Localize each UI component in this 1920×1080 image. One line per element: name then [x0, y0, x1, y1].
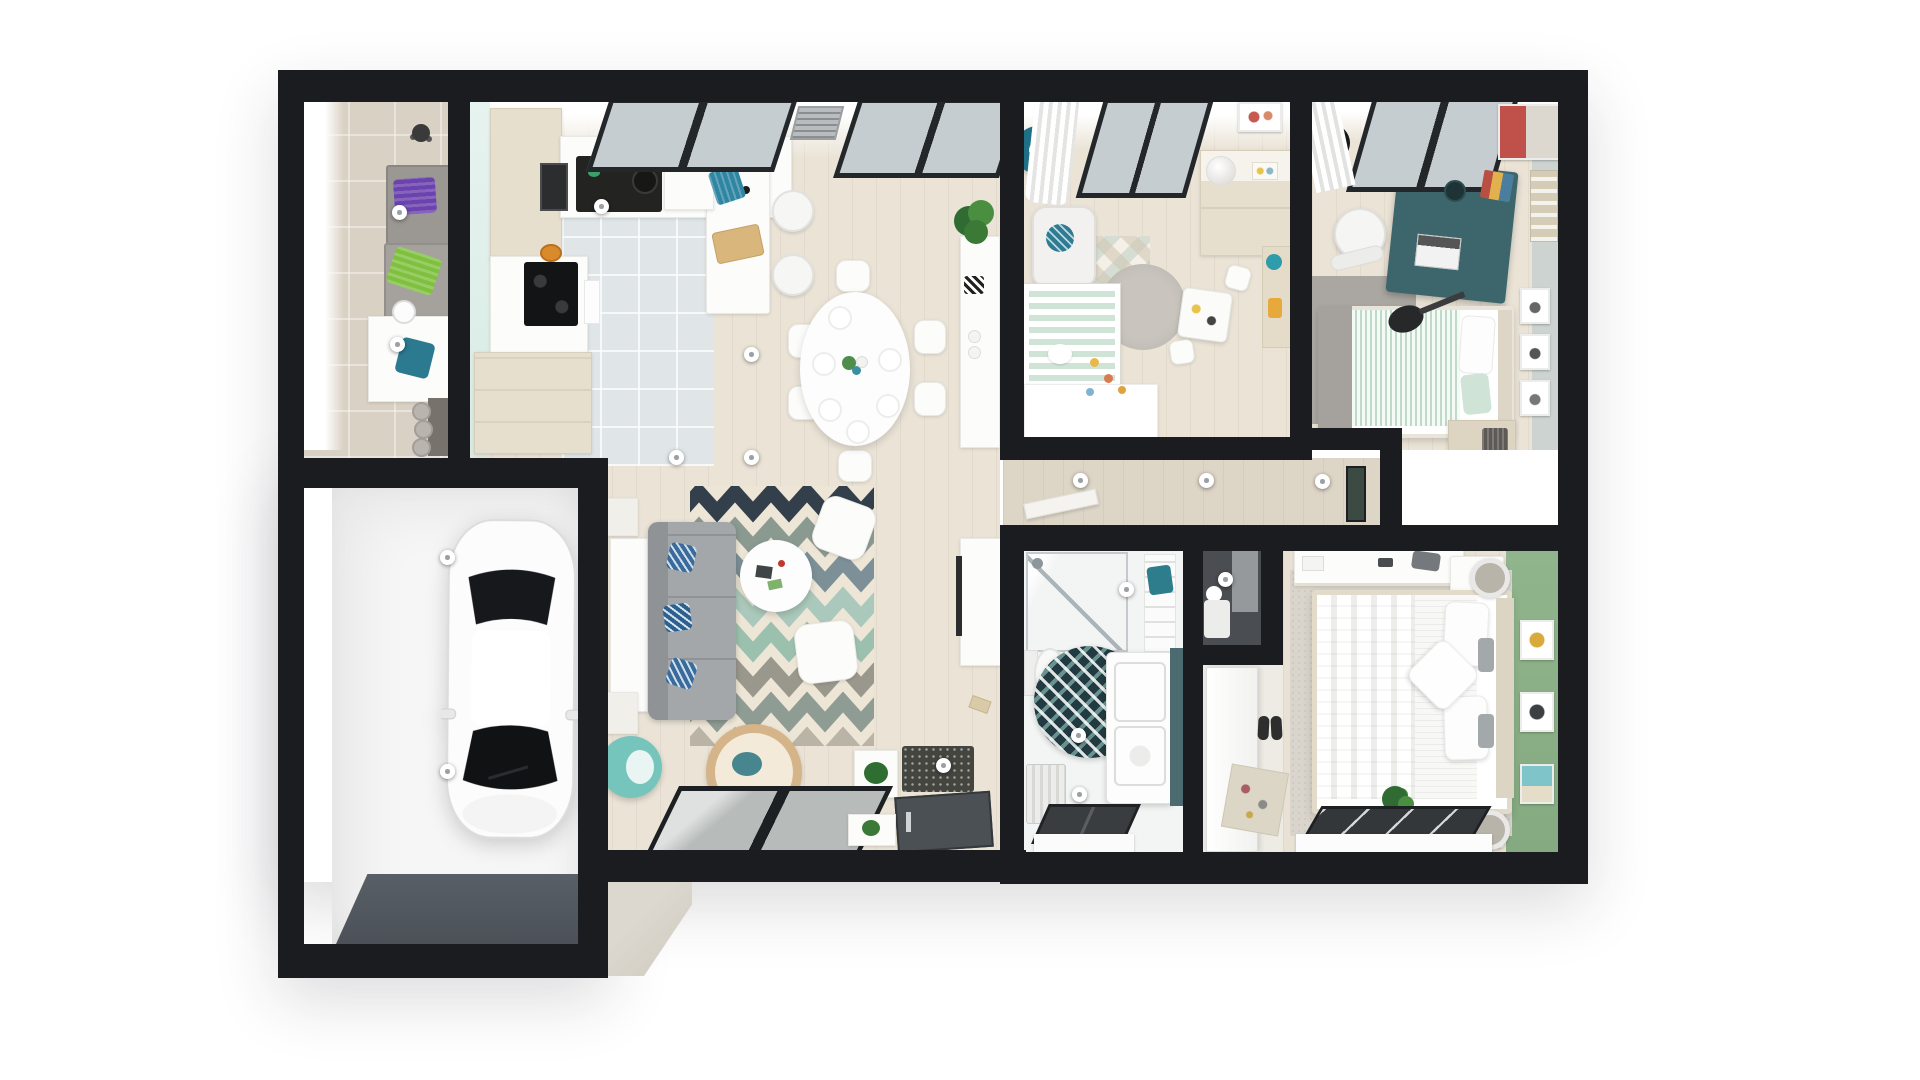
teen-headboard [1498, 310, 1512, 428]
kids-table [1177, 287, 1233, 343]
hallway-floor [1003, 458, 1387, 525]
wall-living-right-upper [1000, 70, 1024, 460]
floor-plan-canvas [0, 0, 1920, 1080]
laundry-window-light [302, 98, 344, 450]
hotspot-marker[interactable] [440, 764, 455, 779]
wall-right-outer [1558, 70, 1588, 884]
dining-chair-right-1 [914, 320, 946, 354]
wall-nursery-teen-divider [1290, 70, 1312, 448]
tv-screen [956, 556, 962, 636]
hotspot-marker[interactable] [744, 450, 759, 465]
plate-5 [876, 394, 900, 418]
sofa-pillow-1 [665, 541, 697, 573]
dining-chair-bottom [838, 450, 872, 482]
master-frame-3 [1520, 764, 1554, 804]
exterior-notch [1402, 450, 1558, 526]
dining-chair-top [836, 260, 870, 292]
magazine-rack [1530, 170, 1558, 242]
water-heater [1204, 600, 1230, 638]
teen-poster [1498, 104, 1560, 160]
dresser-bag [1411, 550, 1441, 572]
kitchen-skylight-window [586, 98, 798, 172]
planter-plant-1 [864, 762, 888, 784]
wall-top [278, 70, 1588, 102]
porch-step [596, 882, 692, 976]
teen-gray-throw [1318, 306, 1352, 430]
wall-wc-right [1261, 525, 1283, 665]
armchair-teal-cushion [1046, 224, 1074, 252]
plate-6 [846, 420, 870, 444]
wall-garage-right [578, 460, 608, 978]
hotspot-marker[interactable] [1119, 582, 1134, 597]
toy-4 [1118, 386, 1126, 394]
hotspot-marker[interactable] [936, 758, 951, 773]
plate-1 [828, 306, 852, 330]
master-duvet [1317, 595, 1415, 799]
wall-laundry-divider [448, 70, 470, 480]
lamp-top [1470, 558, 1510, 598]
wall-garage-top [278, 458, 608, 488]
hotspot-marker[interactable] [669, 450, 684, 465]
hotspot-marker[interactable] [440, 550, 455, 565]
dining-sideboard [960, 236, 1000, 448]
kids-chair-2 [1168, 338, 1195, 365]
sofa-pillow-2 [662, 602, 692, 632]
oven-towel [584, 280, 600, 324]
wall-living-right-lower [1000, 525, 1024, 882]
coffee-table [740, 540, 812, 612]
centerpiece-flowers [856, 356, 868, 368]
desk-speaker [1444, 180, 1466, 202]
wall-bottom-right-section [1000, 852, 1588, 884]
jewelry-tray [1221, 763, 1289, 836]
coffee-table-apple [778, 560, 785, 567]
wall-left [278, 70, 304, 978]
vanity-sink-1 [1114, 662, 1166, 722]
pastry-bowl [540, 244, 562, 262]
car [441, 515, 582, 842]
zigzag-mug [964, 276, 984, 294]
hotspot-marker[interactable] [1072, 787, 1087, 802]
plate-4 [818, 398, 842, 422]
master-frame-2 [1520, 692, 1554, 732]
dresser-boxes [1302, 556, 1324, 571]
bathroom-window-sill [1034, 834, 1134, 852]
kitchen-cooktop [524, 262, 578, 326]
hotspot-marker[interactable] [1315, 474, 1330, 489]
laundry-basket-1 [412, 402, 431, 421]
master-headboard [1496, 598, 1514, 798]
teen-pillow-mint [1460, 373, 1492, 416]
kitchen-wall-oven [540, 163, 568, 211]
plate-3 [878, 348, 902, 372]
hotspot-marker[interactable] [744, 347, 759, 362]
wall-nursery-bottom [1000, 437, 1312, 460]
shelf-teal-toy [1266, 254, 1282, 270]
laundry-basket-2 [414, 420, 433, 439]
pouf-2 [793, 619, 860, 686]
garage-door-strip [336, 874, 578, 944]
sofa-console [610, 538, 648, 712]
planter-plant-2 [862, 820, 880, 836]
shelf-yellow-toy [1268, 298, 1282, 318]
teen-frame-3 [1520, 380, 1550, 416]
crib-pillow [1048, 344, 1072, 364]
dresser-toy-car [1378, 558, 1393, 567]
dresser-deco [1252, 162, 1278, 180]
tv-console [960, 538, 1002, 666]
coffee-table-magazine [755, 565, 773, 579]
sideboard-jar-1 [968, 330, 981, 343]
hanging-chair-cushion [732, 752, 762, 776]
vent-grille [790, 106, 844, 140]
hotspot-marker[interactable] [1073, 473, 1088, 488]
hall-picture-frame [1346, 466, 1366, 522]
vanity-sink-2 [1114, 726, 1166, 786]
wc-inner-panel [1232, 548, 1258, 612]
shower-head [1032, 558, 1043, 569]
kitchen-lower-cabinets [474, 352, 592, 454]
wall-wc-left [1183, 525, 1203, 852]
desk-books [1480, 170, 1514, 203]
desk-laptop [1414, 234, 1461, 270]
hotspot-marker[interactable] [1218, 572, 1233, 587]
wall-garage-bottom [278, 944, 608, 978]
nursery-wall-art [1238, 102, 1282, 132]
ball-chair-opening [626, 750, 654, 784]
hotspot-marker[interactable] [1199, 473, 1214, 488]
master-gray-pillow-1 [1478, 638, 1494, 672]
bath-teal-towel [1146, 564, 1174, 595]
dresser-ball-lamp [1206, 156, 1236, 186]
vanity-teal-panel [1170, 648, 1183, 806]
corner-plant [952, 200, 1002, 252]
stool-1 [772, 190, 814, 232]
laundry-sink [392, 300, 416, 324]
hotspot-marker[interactable] [392, 205, 407, 220]
wall-hall-bottom [1000, 525, 1588, 551]
sideboard-jar-2 [968, 346, 981, 359]
shoe-1 [1257, 716, 1269, 741]
toy-3 [1086, 388, 1094, 396]
teen-pillow [1458, 315, 1496, 375]
dining-chair-right-2 [914, 382, 946, 416]
toy-1 [1090, 358, 1099, 367]
dining-skylight-window [833, 98, 1025, 178]
hotspot-marker[interactable] [390, 337, 405, 352]
master-window-sill [1296, 834, 1492, 852]
front-door-handle [906, 812, 911, 832]
teen-frame-2 [1520, 334, 1550, 370]
laundry-fan [412, 124, 430, 142]
plate-2 [812, 352, 836, 376]
master-gray-pillow-2 [1478, 714, 1494, 748]
hotspot-marker[interactable] [594, 199, 609, 214]
hotspot-marker[interactable] [1071, 728, 1086, 743]
wall-notch-left [1380, 428, 1402, 532]
teen-frame-1 [1520, 288, 1550, 324]
laundry-basket-3 [412, 438, 431, 457]
wall-main-bottom [596, 850, 1026, 882]
master-frame-1 [1520, 620, 1554, 660]
wall-wc-bottom [1183, 645, 1283, 665]
plant-leaf-3 [964, 220, 988, 244]
shoe-2 [1270, 716, 1282, 741]
toy-2 [1104, 374, 1113, 383]
stool-2 [772, 254, 814, 296]
